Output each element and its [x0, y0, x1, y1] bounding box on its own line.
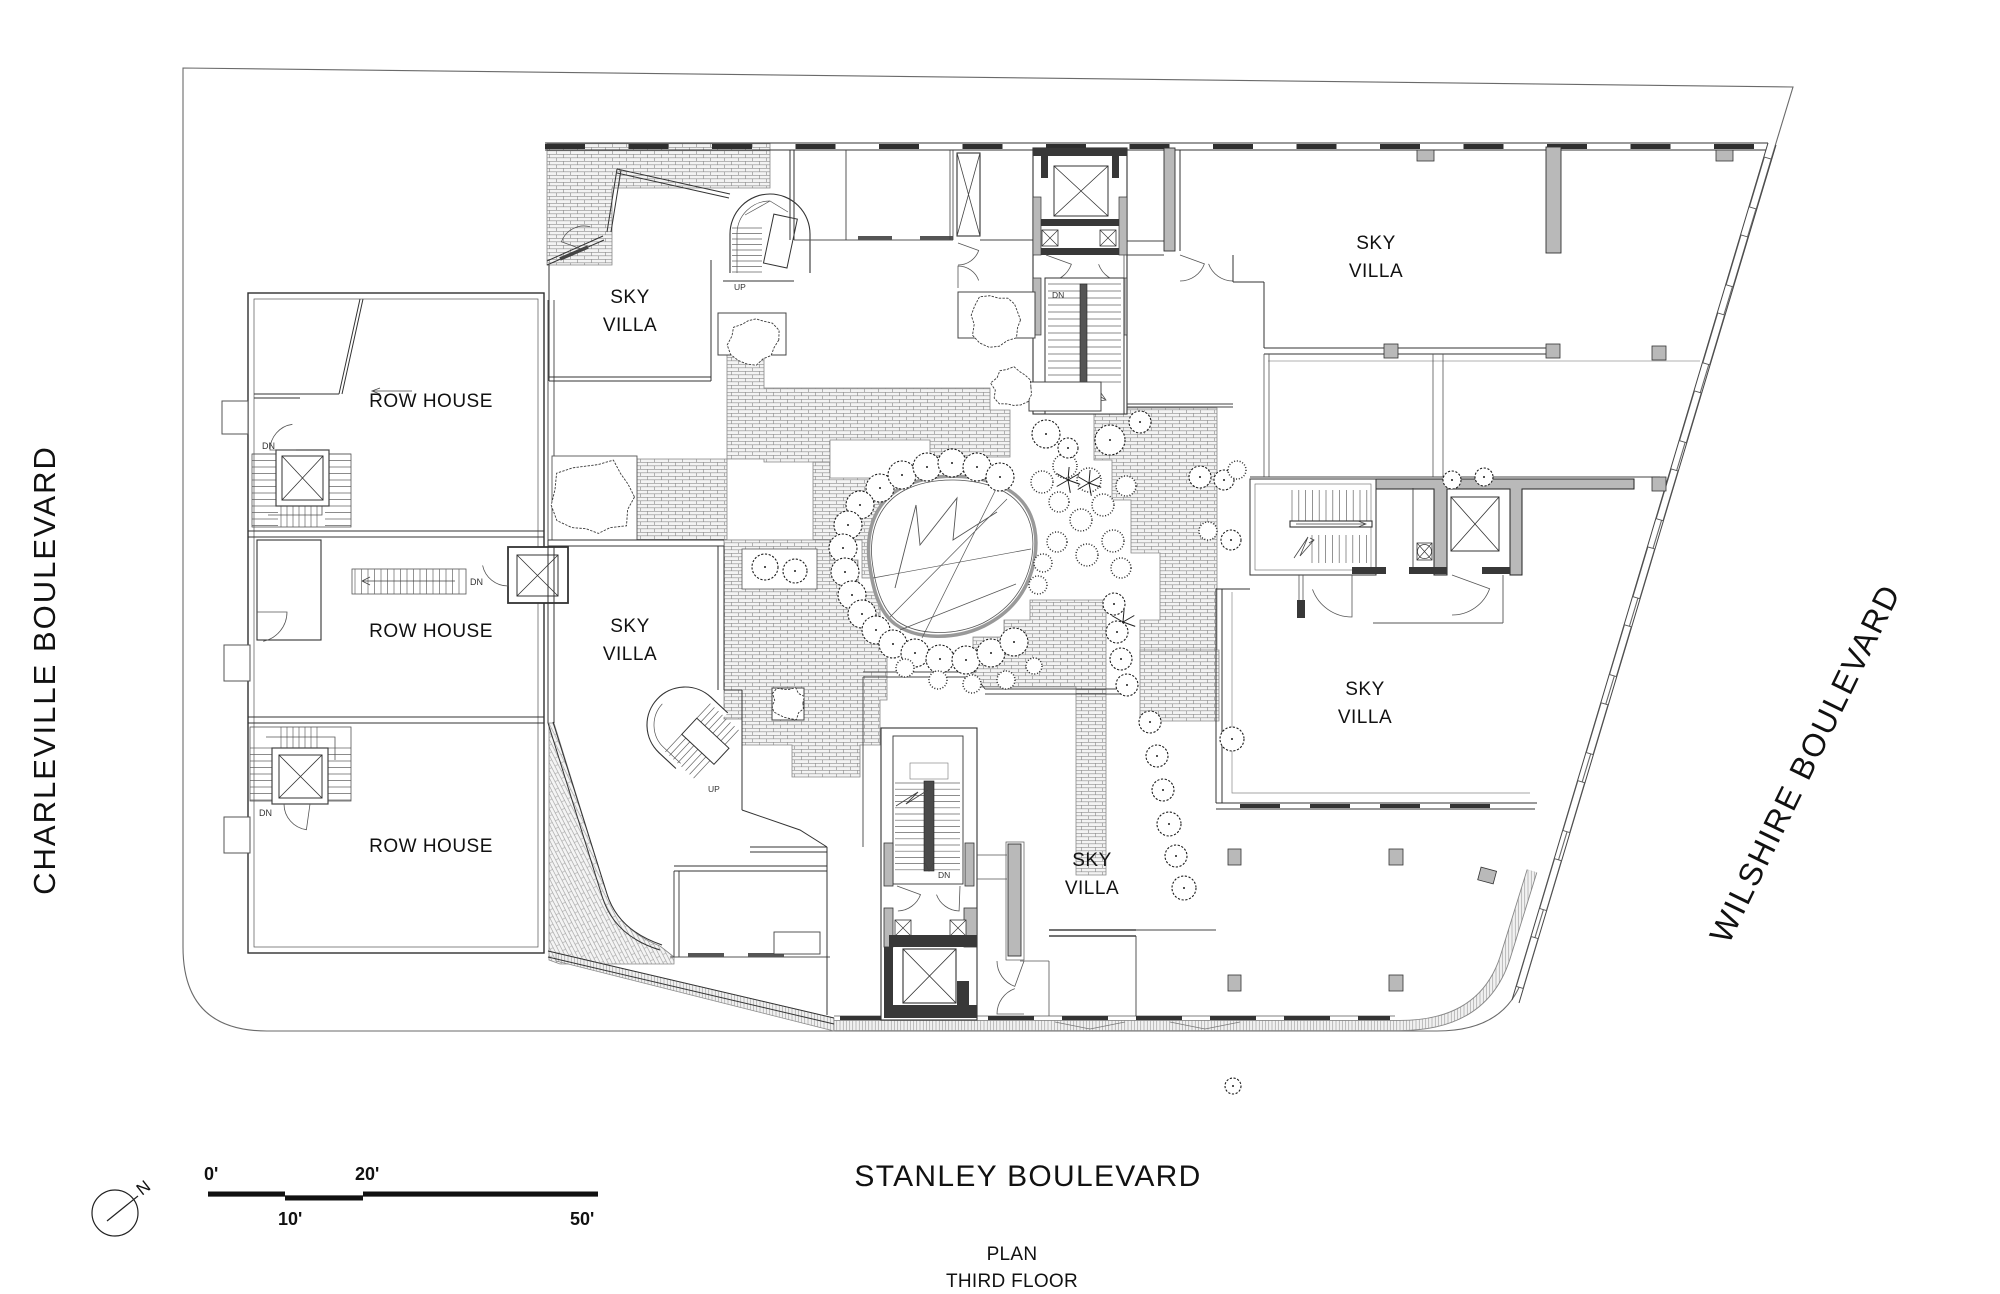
svg-text:VILLA: VILLA — [1349, 261, 1403, 282]
svg-text:CHARLEVILLE BOULEVARD: CHARLEVILLE BOULEVARD — [27, 445, 62, 895]
svg-text:VILLA: VILLA — [603, 315, 657, 336]
svg-text:VILLA: VILLA — [1065, 878, 1119, 899]
svg-text:VILLA: VILLA — [603, 644, 657, 665]
svg-text:20': 20' — [355, 1164, 379, 1184]
svg-text:0': 0' — [204, 1164, 218, 1184]
svg-text:UP: UP — [734, 282, 746, 292]
svg-text:ROW HOUSE: ROW HOUSE — [369, 836, 493, 857]
svg-text:PLAN: PLAN — [987, 1244, 1038, 1265]
svg-text:10': 10' — [278, 1209, 302, 1229]
svg-text:VILLA: VILLA — [1338, 707, 1392, 728]
svg-text:SKY: SKY — [610, 287, 650, 308]
svg-text:SKY: SKY — [1072, 850, 1112, 871]
svg-text:SKY: SKY — [1356, 233, 1396, 254]
svg-text:SKY: SKY — [1345, 679, 1385, 700]
svg-text:DN: DN — [259, 808, 272, 818]
svg-text:DN: DN — [262, 441, 275, 451]
svg-text:SKY: SKY — [610, 616, 650, 637]
svg-text:ROW HOUSE: ROW HOUSE — [369, 621, 493, 642]
svg-text:50': 50' — [570, 1209, 594, 1229]
svg-text:DN: DN — [938, 870, 950, 880]
svg-text:THIRD FLOOR: THIRD FLOOR — [946, 1271, 1078, 1292]
svg-text:DN: DN — [470, 577, 483, 587]
svg-text:DN: DN — [1052, 290, 1064, 300]
svg-text:STANLEY BOULEVARD: STANLEY BOULEVARD — [854, 1160, 1201, 1193]
svg-text:UP: UP — [708, 784, 720, 794]
svg-text:ROW HOUSE: ROW HOUSE — [369, 391, 493, 412]
